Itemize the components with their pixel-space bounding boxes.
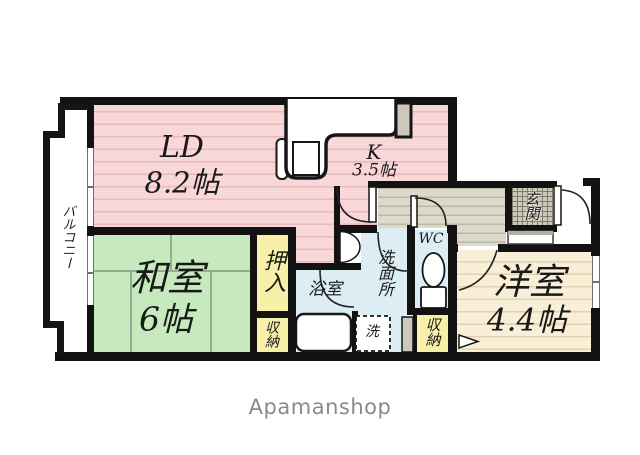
pipe-space-pillar [396, 103, 411, 137]
toilet-tank [421, 287, 446, 308]
entrance-label: 玄関 [524, 191, 539, 221]
entrance-door-arc [562, 190, 590, 224]
apamanshop-logo: Apamanshop [249, 395, 392, 419]
ld-room-size: 8.2帖 [144, 169, 219, 198]
bathroom-label: 浴室 [308, 282, 342, 299]
bathtub [296, 314, 351, 351]
kitchen-label: K [367, 142, 382, 162]
wc-door-arc [415, 198, 446, 226]
washroom-sink [340, 232, 360, 263]
kitchen-size: 3.5帖 [352, 163, 396, 180]
closet-label: 押入 [261, 249, 283, 293]
entrance-door-leaf [554, 186, 561, 225]
kitchen-door-arc [337, 187, 372, 222]
kitchen-sink [293, 142, 319, 175]
balcony-label: バルコニー [61, 205, 74, 270]
toilet-bowl [423, 253, 445, 287]
western-room-label: 洋室 [493, 265, 565, 301]
floorplan: LD 8.2帖 K 3.5帖 和室 6帖 洋室 4.4帖 押入 収納 収納 浴室… [0, 0, 640, 455]
western-room-door-arc [459, 250, 497, 290]
wc-door-leaf [411, 196, 417, 227]
ld-room-label: LD [160, 133, 204, 163]
pipe-block [402, 317, 413, 352]
fixtures-layer [0, 0, 640, 455]
wc-label: WC [418, 232, 443, 246]
kitchen-door-leaf [369, 187, 376, 222]
laundry-label: 洗 [365, 325, 379, 339]
japanese-room-size: 6帖 [139, 303, 193, 336]
western-room-size: 4.4帖 [487, 306, 567, 337]
storage-left-label: 収納 [264, 320, 278, 348]
shoe-cabinet-top [508, 231, 553, 235]
storage-right-label: 収納 [425, 317, 440, 347]
japanese-room-label: 和室 [130, 260, 204, 297]
washroom-label: 洗面所 [376, 249, 392, 297]
step-arrow [459, 335, 478, 348]
